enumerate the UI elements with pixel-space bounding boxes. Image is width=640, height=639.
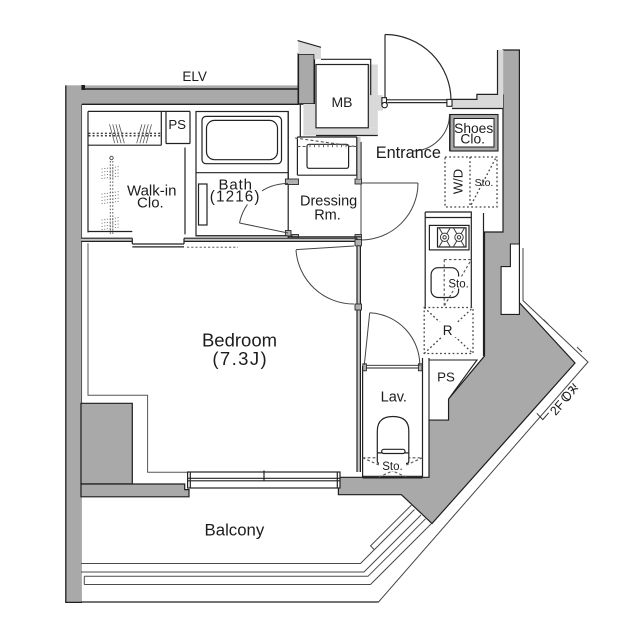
svg-text:(7.3J): (7.3J) bbox=[212, 348, 268, 369]
svg-text:PS: PS bbox=[168, 117, 186, 132]
svg-text:(1216): (1216) bbox=[210, 188, 261, 205]
svg-text:Sto.: Sto. bbox=[448, 279, 468, 291]
svg-text:Sto.: Sto. bbox=[382, 461, 402, 473]
svg-text:ELV: ELV bbox=[182, 69, 207, 84]
svg-text:W/D: W/D bbox=[451, 169, 466, 194]
svg-text:MB: MB bbox=[332, 94, 353, 110]
svg-text:Lav.: Lav. bbox=[381, 389, 407, 405]
svg-text:Sto.: Sto. bbox=[475, 177, 494, 189]
svg-text:Rm.: Rm. bbox=[314, 208, 341, 224]
svg-text:Clo.: Clo. bbox=[137, 195, 164, 212]
svg-text:PS: PS bbox=[437, 370, 455, 385]
svg-text:Entrance: Entrance bbox=[376, 144, 441, 162]
svg-text:Clo.: Clo. bbox=[460, 132, 485, 147]
svg-text:Balcony: Balcony bbox=[205, 521, 265, 540]
svg-text:R: R bbox=[443, 323, 453, 338]
